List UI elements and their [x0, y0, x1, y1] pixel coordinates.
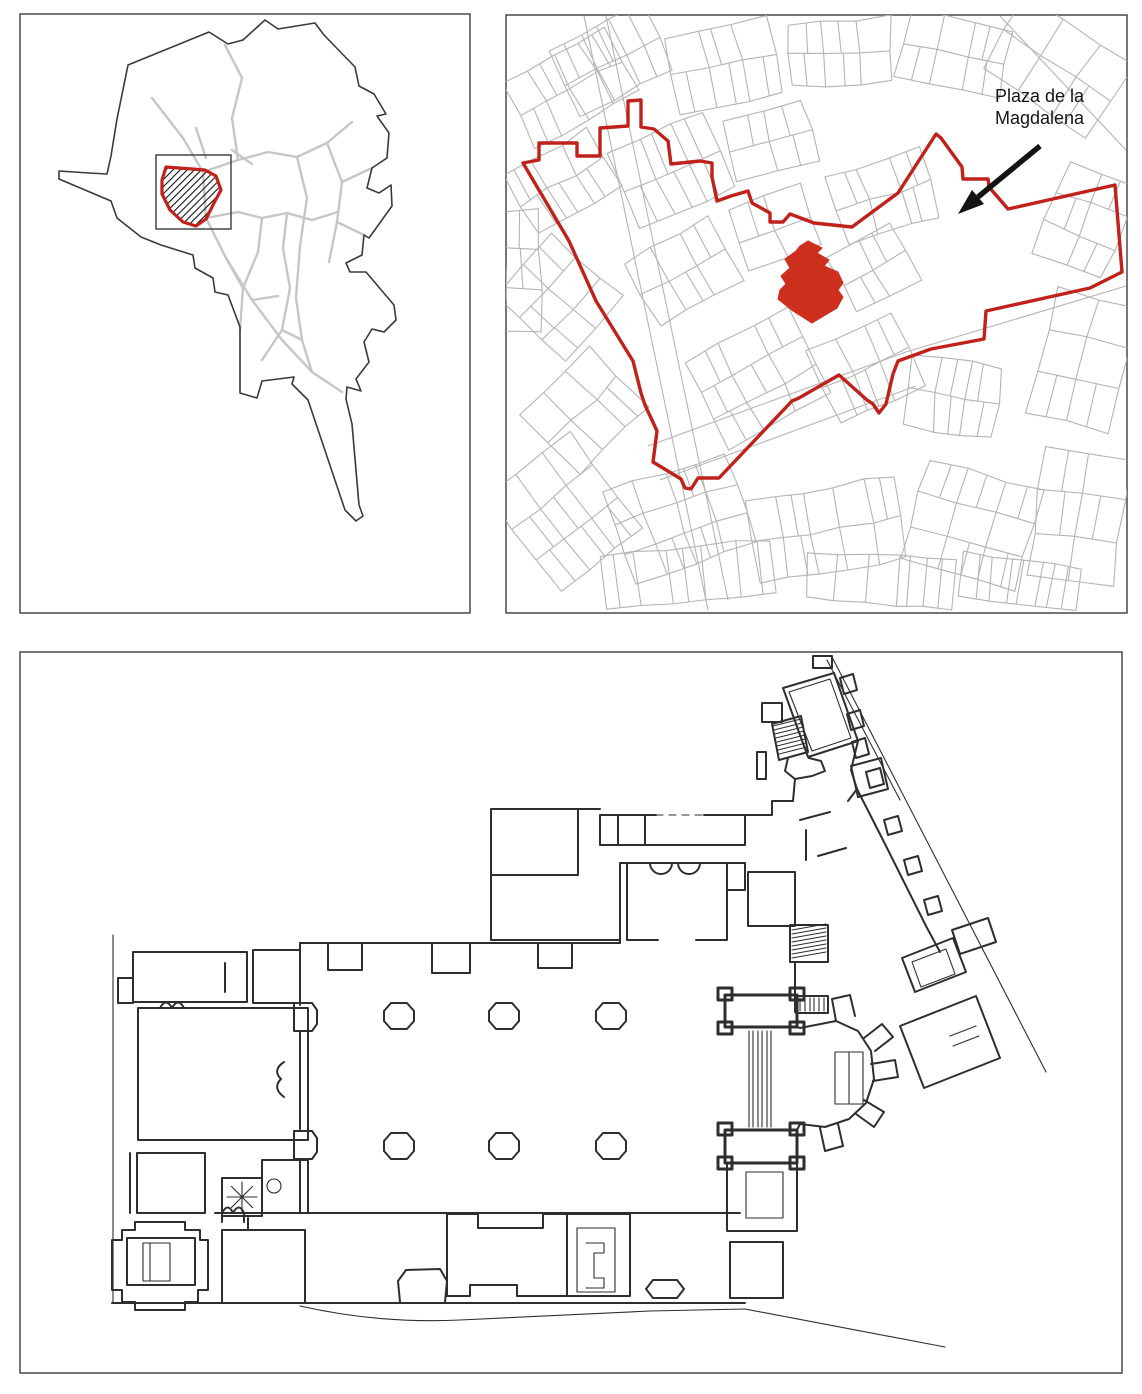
panel-cadastral-map: Plaza de la Magdalena: [486, 0, 1141, 613]
panel-city-map: [20, 14, 470, 613]
panel-floor-plan: [20, 652, 1122, 1373]
city-map-frame: [20, 14, 470, 613]
floor-plan-frame: [20, 652, 1122, 1373]
plaza-label-line2: Magdalena: [995, 108, 1085, 128]
figure-page: Plaza de la Magdalena: [0, 0, 1142, 1394]
plaza-label-line1: Plaza de la: [995, 86, 1085, 106]
figure-canvas: Plaza de la Magdalena: [0, 0, 1142, 1394]
